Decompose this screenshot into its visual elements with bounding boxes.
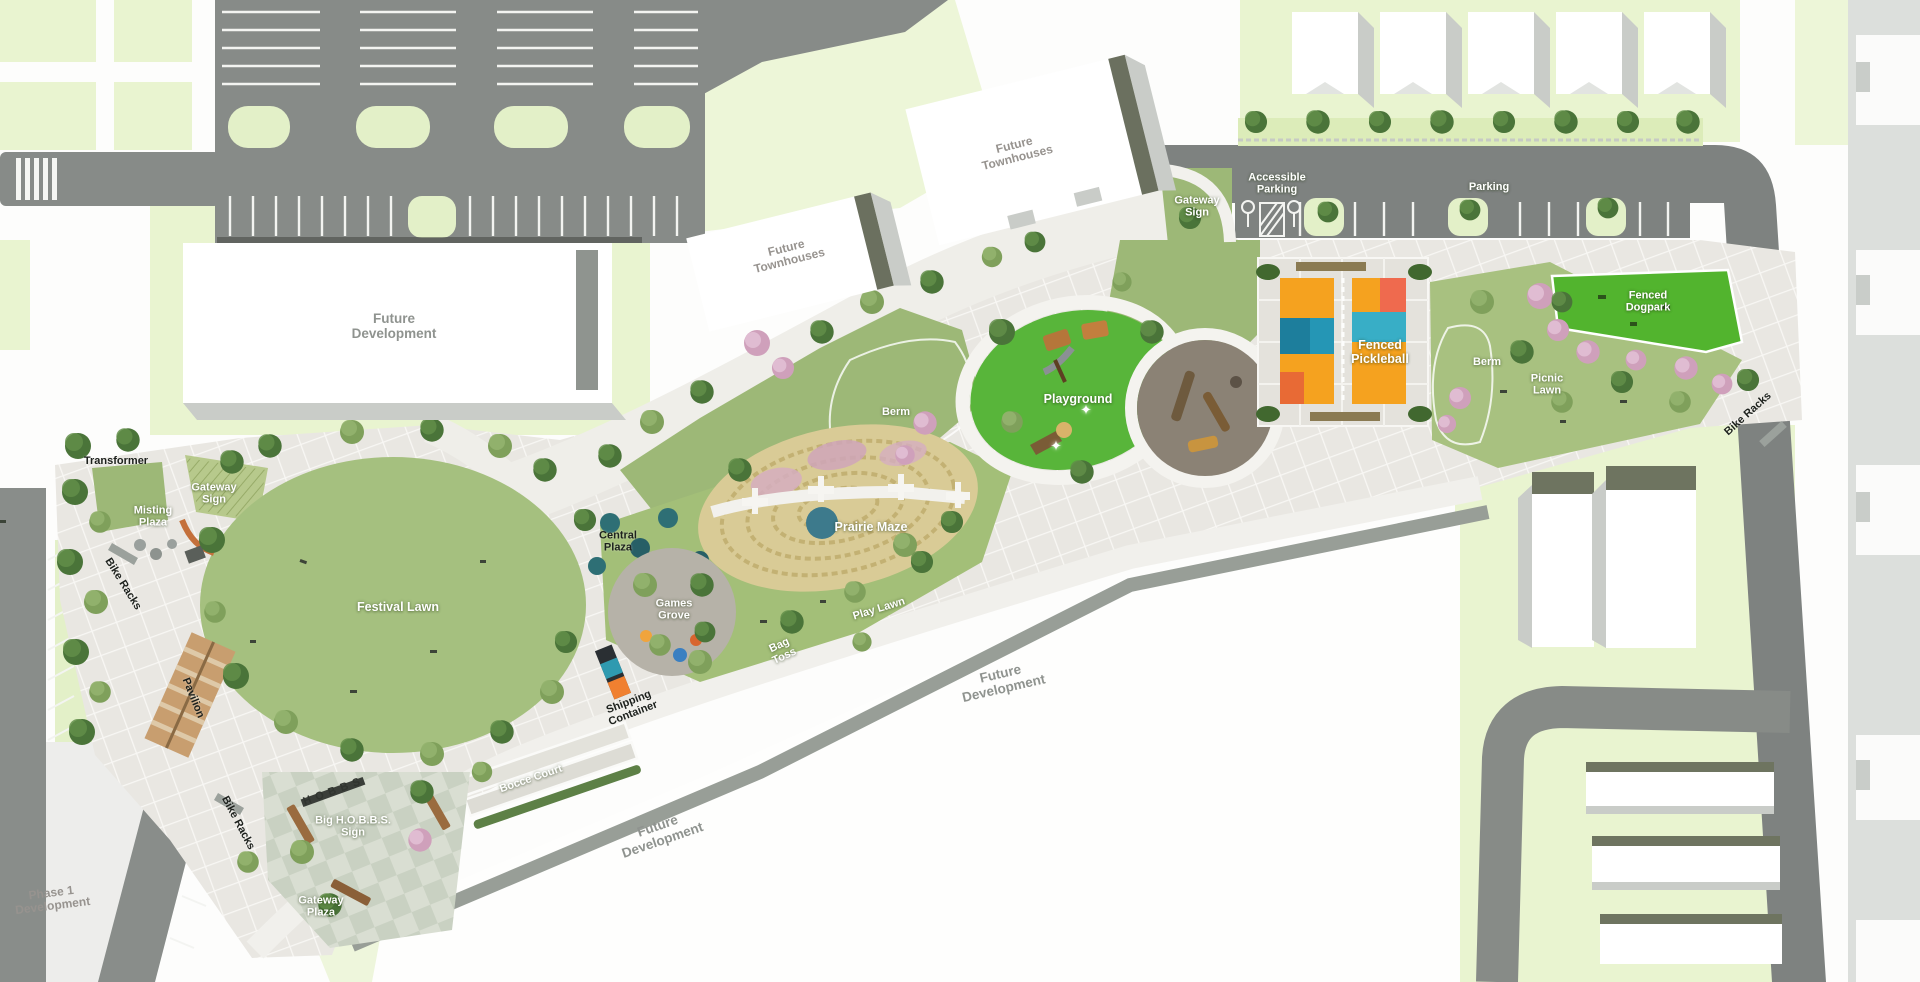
right-edge-buildings xyxy=(1848,0,1920,982)
townhouse-row xyxy=(1292,12,1726,108)
site-plan-drawing xyxy=(0,0,1920,982)
prairie-pond xyxy=(806,507,838,539)
site-plan-map: Future Development Future Townhouses Fut… xyxy=(0,0,1920,982)
games-grove xyxy=(608,548,736,676)
pickleball-courts xyxy=(1256,258,1432,426)
curb-shadow xyxy=(217,237,642,243)
right-buildings xyxy=(1518,466,1696,648)
future-development-building xyxy=(183,243,626,420)
bottom-right-buildings xyxy=(1586,762,1782,964)
festival-lawn xyxy=(200,457,586,753)
nature-play-circle xyxy=(1131,334,1279,482)
